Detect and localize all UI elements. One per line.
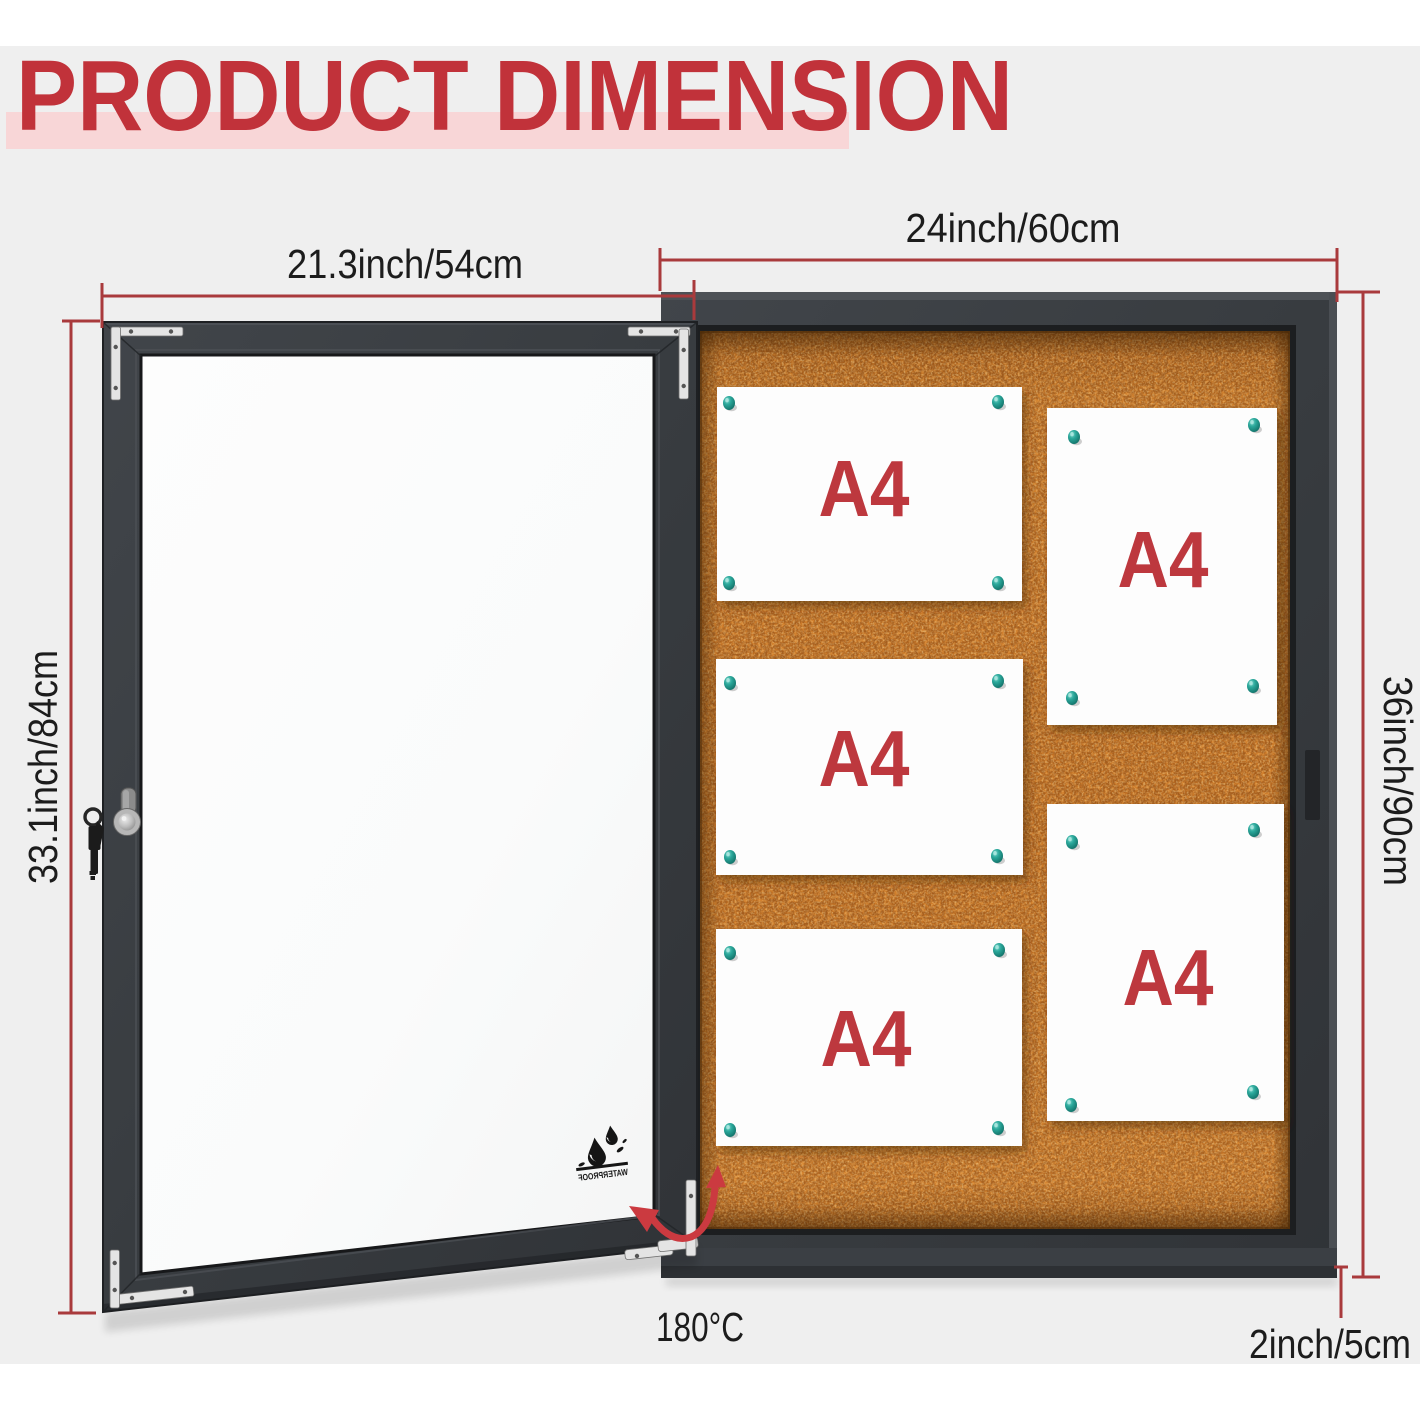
svg-text:A4: A4 [1118,515,1209,604]
svg-text:A4: A4 [1123,933,1214,1022]
svg-text:36inch/90cm: 36inch/90cm [1375,676,1420,886]
svg-text:180°C: 180°C [656,1304,744,1350]
svg-text:24inch/60cm: 24inch/60cm [906,205,1121,251]
svg-text:PRODUCT DIMENSION: PRODUCT DIMENSION [16,40,1013,152]
svg-text:33.1inch/84cm: 33.1inch/84cm [20,650,66,884]
svg-text:A4: A4 [819,714,910,803]
svg-text:A4: A4 [819,444,910,533]
svg-text:A4: A4 [821,994,912,1083]
svg-text:2inch/5cm: 2inch/5cm [1249,1321,1411,1367]
svg-text:21.3inch/54cm: 21.3inch/54cm [287,241,523,287]
